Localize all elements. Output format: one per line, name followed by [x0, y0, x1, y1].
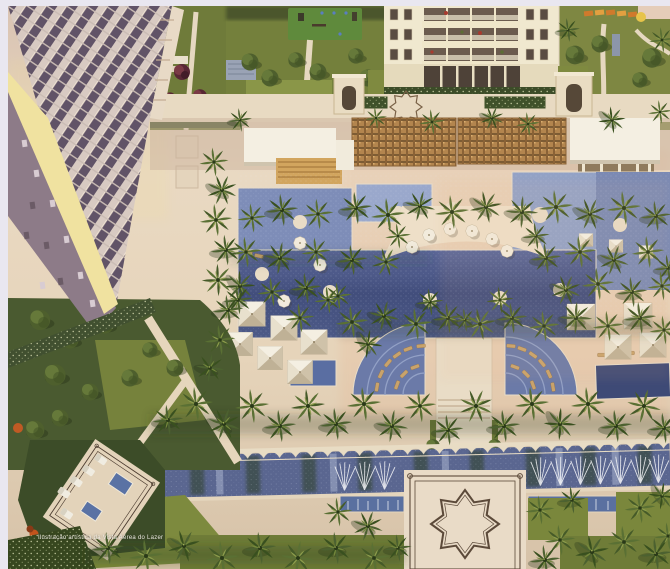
residential-building — [368, 6, 588, 98]
center-garden-playground — [226, 6, 390, 95]
ornate-portal-right — [554, 72, 594, 116]
small-cabana-roof — [336, 140, 354, 170]
scanned-photo-page: Ilustração artística da Vista Aérea do L… — [0, 0, 670, 569]
flowering-tree-orange — [13, 423, 23, 433]
rendering-scene — [8, 6, 670, 569]
balcony-flowers — [444, 11, 448, 15]
wood-trellis-left — [352, 118, 456, 166]
wood-trellis-right — [458, 118, 566, 164]
illustration-caption: Ilustração artística da Vista Aérea do L… — [38, 535, 163, 541]
yellow-umbrella — [636, 12, 646, 22]
star-plaza — [404, 470, 526, 569]
ornate-portal-left — [332, 74, 366, 114]
balcony-floors — [422, 8, 520, 66]
aerial-rendering-photo — [8, 6, 670, 569]
